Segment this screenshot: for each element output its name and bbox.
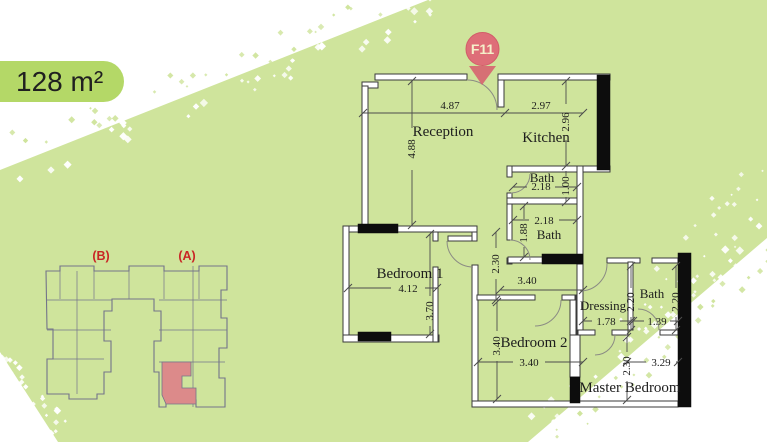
room-label-bath-mid: Bath xyxy=(537,227,562,242)
dim-bedroom1-h: 3.70 xyxy=(424,301,436,321)
dim-master-w: 3.29 xyxy=(651,357,671,369)
room-label-master: Master Bedroom xyxy=(579,380,681,396)
dim-bedroom1-w: 4.12 xyxy=(398,283,417,295)
dim-dressing-h: 2.20 xyxy=(625,292,637,312)
room-label-reception: Reception xyxy=(413,124,474,140)
dim-bath-mid-h: 1.88 xyxy=(518,223,530,243)
room-label-dressing: Dressing xyxy=(580,298,627,313)
marker-label: F11 xyxy=(471,41,495,57)
floorplan-page: (B) (A) xyxy=(0,0,767,442)
dim-hall-h: 2.30 xyxy=(490,254,502,274)
dim-bath-mid-w: 2.18 xyxy=(534,215,554,227)
dim-bath-top-h: 1.00 xyxy=(560,176,572,196)
room-label-bedroom1: Bedroom 1 xyxy=(376,266,443,282)
dim-kitchen-h: 2.96 xyxy=(560,112,572,132)
dim-hall-w: 3.40 xyxy=(517,275,537,287)
block-b-label: (B) xyxy=(92,249,109,263)
dim-master-h: 2.30 xyxy=(621,356,633,376)
area-badge: 128 m² xyxy=(0,61,124,102)
area-badge-label: 128 m² xyxy=(16,66,103,97)
dim-bath-right-w: 1.39 xyxy=(647,316,667,328)
dim-bedroom2-h: 3.40 xyxy=(491,336,503,356)
room-label-bedroom2: Bedroom 2 xyxy=(500,335,567,351)
dim-dressing-w: 1.78 xyxy=(596,316,616,328)
dim-bath-top-w: 2.18 xyxy=(531,181,551,193)
dim-kitchen-w: 2.97 xyxy=(531,100,551,112)
dim-reception-h: 4.88 xyxy=(406,139,418,159)
room-label-bath-right: Bath xyxy=(640,286,665,301)
dim-bath-right-h: 2.20 xyxy=(670,292,682,312)
dim-reception-w: 4.87 xyxy=(440,100,460,112)
dim-bedroom2-w: 3.40 xyxy=(519,357,539,369)
block-a-label: (A) xyxy=(178,249,195,263)
